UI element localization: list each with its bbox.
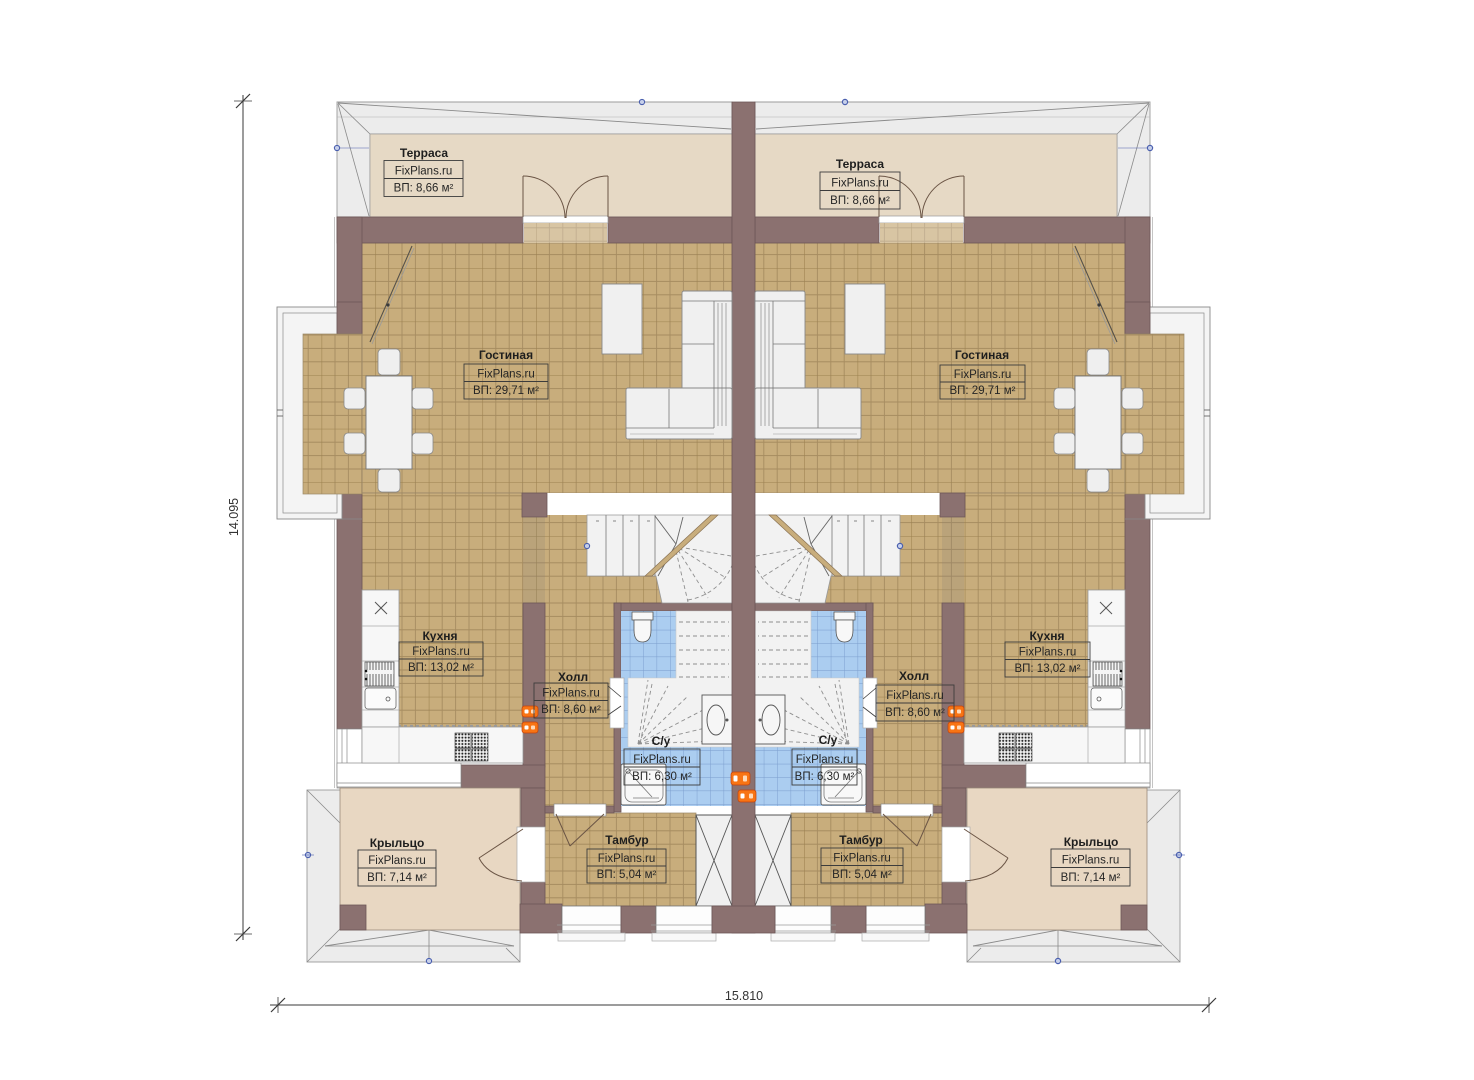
svg-text:Кухня: Кухня	[422, 629, 457, 643]
svg-text:ВП: 29,71 м²: ВП: 29,71 м²	[949, 385, 1015, 397]
svg-text:FixPlans.ru: FixPlans.ru	[395, 166, 453, 178]
svg-text:FixPlans.ru: FixPlans.ru	[1062, 855, 1120, 867]
svg-text:ВП: 8,60 м²: ВП: 8,60 м²	[885, 707, 945, 719]
svg-text:FixPlans.ru: FixPlans.ru	[796, 754, 854, 766]
svg-text:С/у: С/у	[652, 734, 671, 748]
svg-text:ВП: 6,30 м²: ВП: 6,30 м²	[795, 771, 855, 783]
svg-text:FixPlans.ru: FixPlans.ru	[833, 853, 891, 865]
svg-text:FixPlans.ru: FixPlans.ru	[477, 369, 535, 381]
svg-text:FixPlans.ru: FixPlans.ru	[412, 646, 470, 658]
svg-text:Тамбур: Тамбур	[839, 833, 883, 847]
svg-text:Холл: Холл	[899, 669, 929, 683]
svg-text:ВП: 5,04 м²: ВП: 5,04 м²	[597, 869, 657, 881]
svg-text:ВП: 8,66 м²: ВП: 8,66 м²	[830, 195, 890, 207]
svg-text:FixPlans.ru: FixPlans.ru	[633, 754, 691, 766]
svg-text:ВП: 13,02 м²: ВП: 13,02 м²	[408, 662, 474, 674]
svg-text:Крыльцо: Крыльцо	[1064, 835, 1119, 849]
svg-text:Гостиная: Гостиная	[479, 348, 533, 362]
svg-text:FixPlans.ru: FixPlans.ru	[368, 855, 426, 867]
svg-text:Холл: Холл	[558, 670, 588, 684]
svg-text:Крыльцо: Крыльцо	[370, 836, 425, 850]
svg-text:Терраса: Терраса	[400, 146, 449, 160]
svg-text:ВП: 7,14 м²: ВП: 7,14 м²	[367, 872, 427, 884]
svg-text:Кухня: Кухня	[1029, 629, 1064, 643]
svg-text:С/у: С/у	[819, 733, 838, 747]
svg-text:ВП: 7,14 м²: ВП: 7,14 м²	[1061, 872, 1121, 884]
svg-text:FixPlans.ru: FixPlans.ru	[886, 690, 944, 702]
svg-text:ВП: 8,66 м²: ВП: 8,66 м²	[394, 183, 454, 195]
svg-text:FixPlans.ru: FixPlans.ru	[598, 853, 656, 865]
svg-text:Терраса: Терраса	[836, 157, 885, 171]
svg-text:ВП: 8,60 м²: ВП: 8,60 м²	[541, 704, 601, 716]
svg-text:15.810: 15.810	[725, 989, 763, 1003]
svg-text:Тамбур: Тамбур	[605, 833, 649, 847]
svg-text:Гостиная: Гостиная	[955, 348, 1009, 362]
svg-text:FixPlans.ru: FixPlans.ru	[542, 688, 600, 700]
svg-text:14.095: 14.095	[227, 498, 241, 536]
svg-text:ВП: 13,02 м²: ВП: 13,02 м²	[1014, 663, 1080, 675]
svg-text:FixPlans.ru: FixPlans.ru	[1019, 647, 1077, 659]
svg-text:FixPlans.ru: FixPlans.ru	[954, 369, 1012, 381]
svg-text:FixPlans.ru: FixPlans.ru	[831, 178, 889, 190]
svg-text:ВП: 5,04 м²: ВП: 5,04 м²	[832, 869, 892, 881]
svg-text:ВП: 29,71 м²: ВП: 29,71 м²	[473, 385, 539, 397]
svg-text:ВП: 6,30 м²: ВП: 6,30 м²	[632, 771, 692, 783]
